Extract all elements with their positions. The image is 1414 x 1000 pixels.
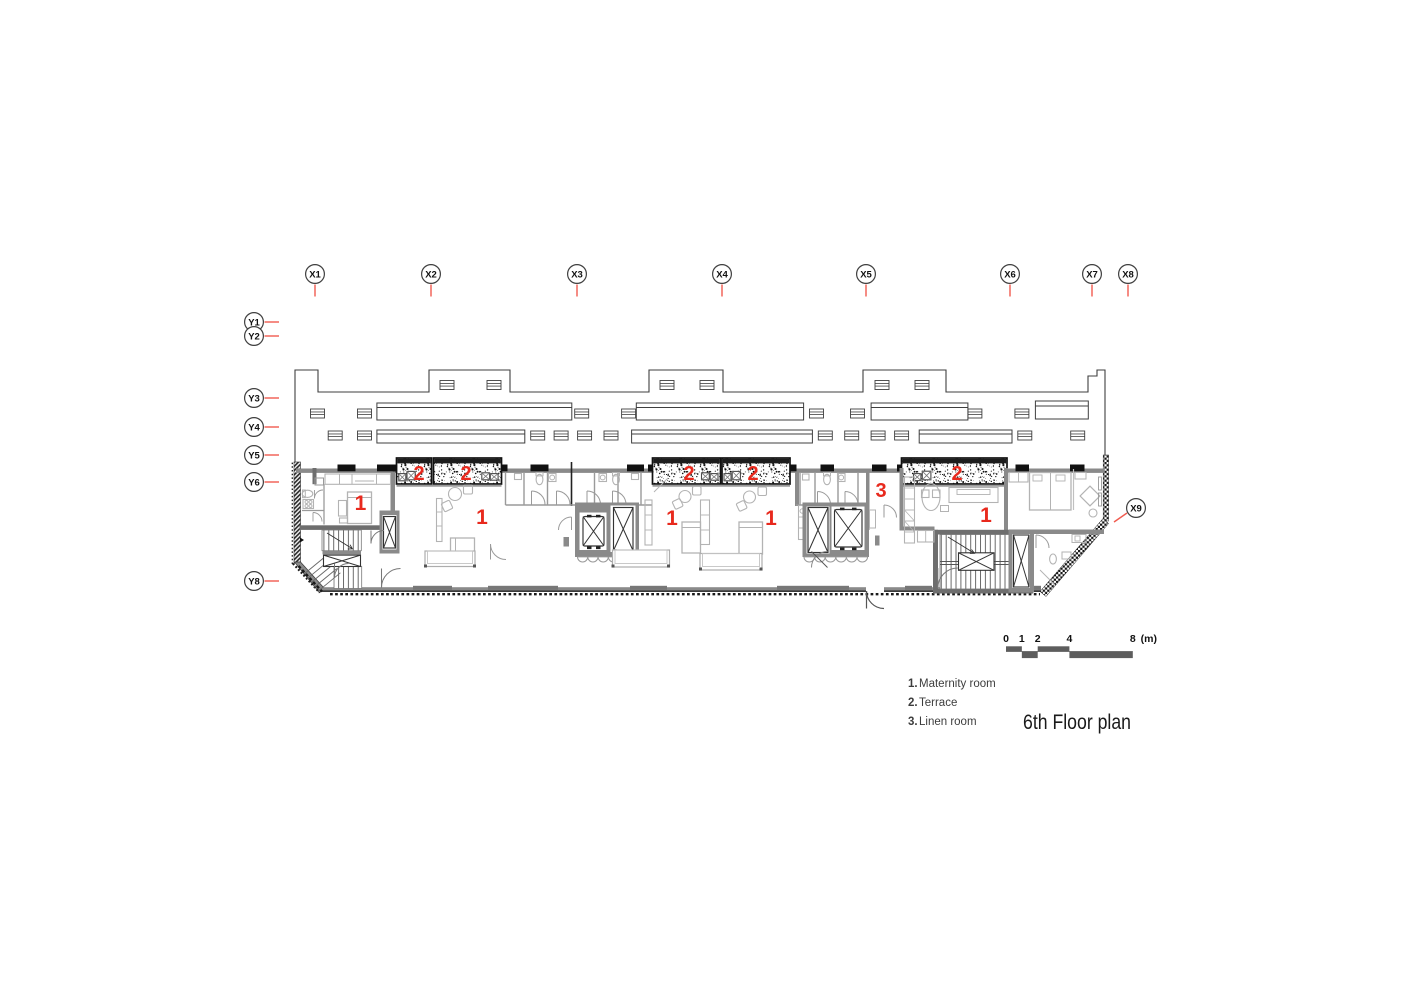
svg-text:X4: X4	[716, 270, 728, 281]
svg-text:X7: X7	[1086, 270, 1098, 281]
svg-text:6th Floor plan: 6th Floor plan	[1023, 711, 1131, 734]
svg-text:1: 1	[980, 504, 992, 527]
svg-text:1: 1	[355, 492, 367, 515]
svg-text:Y4: Y4	[248, 423, 260, 434]
svg-text:X6: X6	[1004, 270, 1016, 281]
svg-text:1.: 1.	[908, 678, 918, 690]
svg-text:0: 0	[1003, 633, 1009, 645]
svg-text:X9: X9	[1130, 504, 1142, 515]
svg-text:8: 8	[1130, 633, 1136, 645]
svg-text:Y6: Y6	[248, 478, 260, 489]
svg-text:X5: X5	[860, 270, 872, 281]
svg-text:2: 2	[951, 463, 962, 485]
svg-text:2: 2	[747, 463, 758, 485]
svg-text:1: 1	[476, 506, 488, 529]
svg-text:4: 4	[1066, 633, 1072, 645]
svg-text:3.: 3.	[908, 716, 918, 728]
svg-text:(m): (m)	[1141, 633, 1157, 645]
svg-text:X1: X1	[309, 270, 321, 281]
svg-text:1: 1	[666, 507, 678, 530]
svg-text:2: 2	[683, 463, 694, 485]
svg-text:Y8: Y8	[248, 577, 260, 588]
svg-text:Linen room: Linen room	[919, 716, 977, 728]
svg-text:Y3: Y3	[248, 394, 260, 405]
svg-text:Y5: Y5	[248, 451, 260, 462]
svg-text:3: 3	[875, 480, 886, 502]
svg-text:1: 1	[1019, 633, 1025, 645]
svg-text:2: 2	[413, 463, 424, 485]
svg-text:X2: X2	[425, 270, 437, 281]
svg-text:2: 2	[1035, 633, 1041, 645]
svg-text:Y2: Y2	[248, 332, 260, 343]
svg-text:Maternity room: Maternity room	[919, 678, 996, 690]
svg-text:X3: X3	[571, 270, 583, 281]
svg-text:2.: 2.	[908, 697, 918, 709]
svg-text:Terrace: Terrace	[919, 697, 957, 709]
svg-text:1: 1	[765, 507, 777, 530]
svg-text:X8: X8	[1122, 270, 1134, 281]
svg-text:2: 2	[460, 463, 471, 485]
